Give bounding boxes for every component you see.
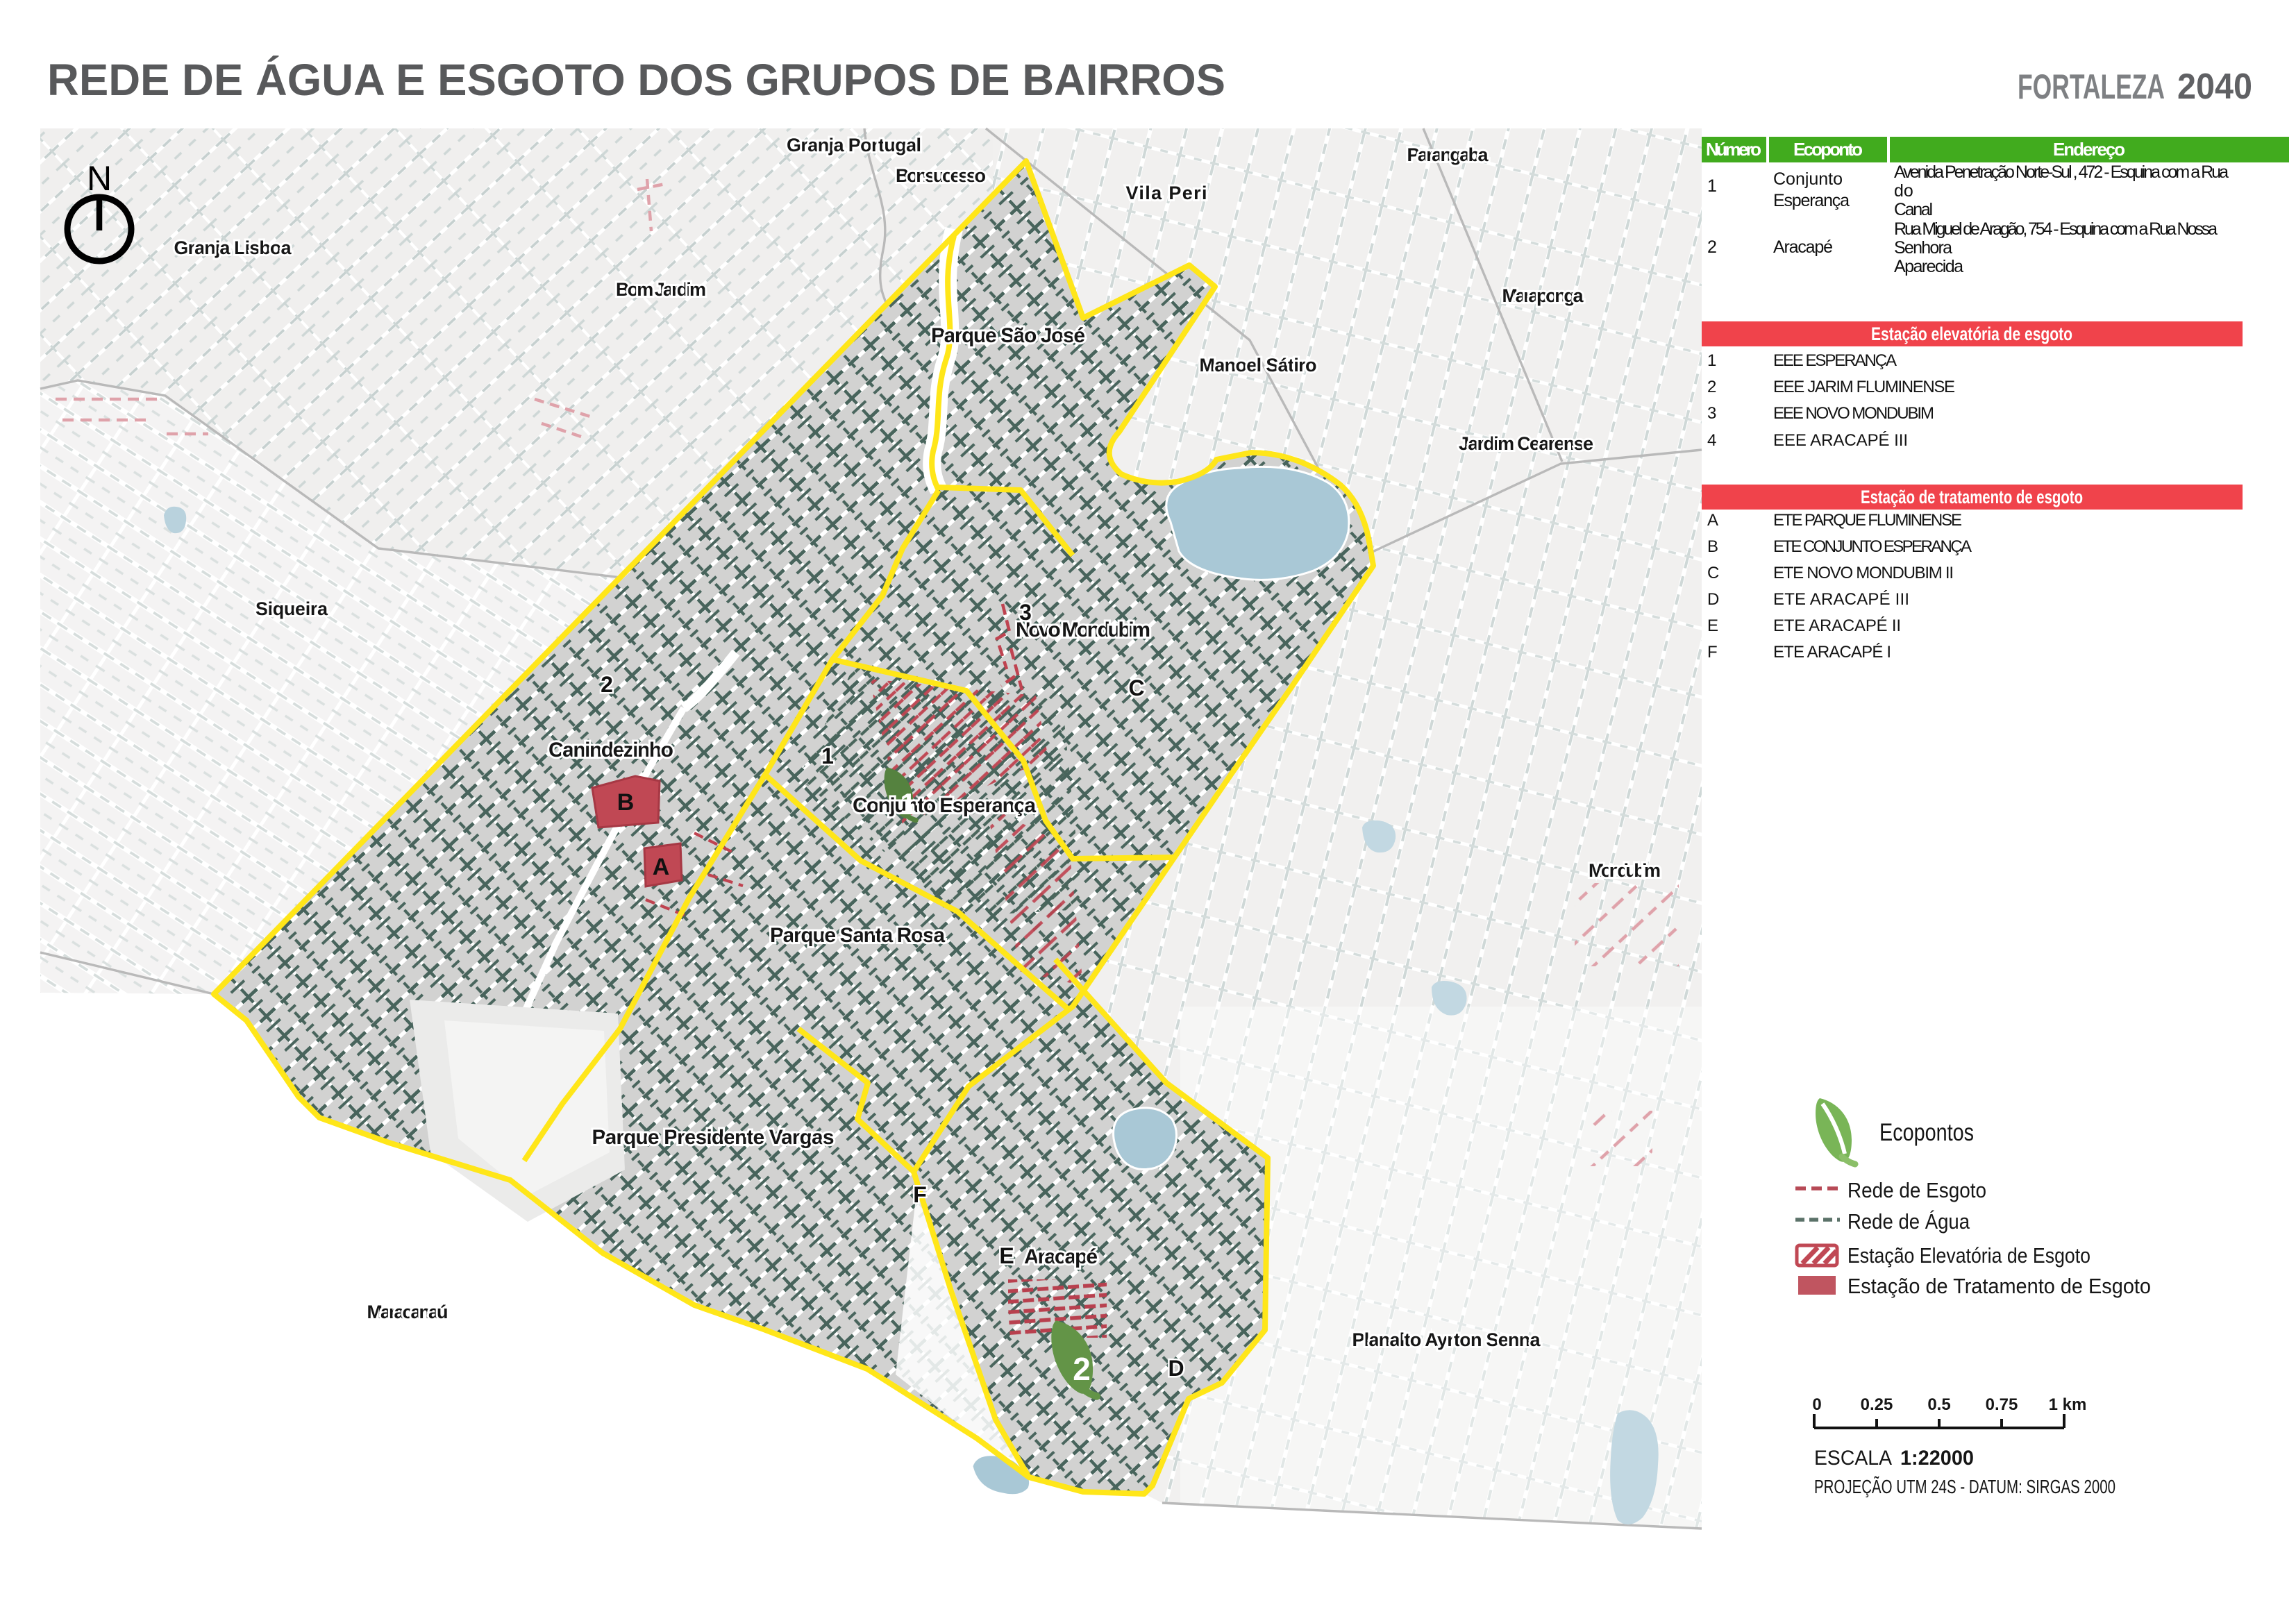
svg-text:PROJEÇÃO UTM 24S - DATUM: SIRG: PROJEÇÃO UTM 24S - DATUM: SIRGAS 2000 — [1814, 1476, 2115, 1497]
svg-text:1: 1 — [900, 787, 916, 820]
svg-text:Estação de tratamento de esgot: Estação de tratamento de esgoto — [1861, 487, 2083, 507]
svg-text:Estação elevatória de esgoto: Estação elevatória de esgoto — [1871, 323, 2072, 344]
svg-text:Esperança: Esperança — [1773, 191, 1850, 210]
svg-text:FORTALEZA: FORTALEZA — [2018, 67, 2165, 106]
svg-text:2: 2 — [1707, 237, 1717, 257]
svg-text:Canindezinho: Canindezinho — [548, 739, 673, 762]
svg-text:EEE ESPERANÇA: EEE ESPERANÇA — [1773, 351, 1897, 370]
svg-text:2: 2 — [601, 672, 613, 697]
svg-text:Jardim Cearense: Jardim Cearense — [1459, 433, 1593, 454]
svg-text:Senhora: Senhora — [1894, 238, 1952, 258]
svg-text:0.25: 0.25 — [1861, 1395, 1893, 1414]
svg-text:Parque São José: Parque São José — [931, 324, 1085, 347]
svg-text:Granja Portugal: Granja Portugal — [787, 135, 921, 155]
svg-text:C: C — [1128, 675, 1144, 700]
svg-text:ETE ARACAPÉ II: ETE ARACAPÉ II — [1773, 616, 1901, 635]
svg-text:D: D — [1168, 1356, 1184, 1381]
svg-text:3: 3 — [1707, 404, 1716, 423]
svg-text:Endereço: Endereço — [2053, 139, 2125, 160]
svg-text:ETE NOVO MONDUBIM II: ETE NOVO MONDUBIM II — [1773, 564, 1954, 582]
svg-text:Maraponga: Maraponga — [1502, 285, 1584, 306]
svg-text:0: 0 — [1812, 1395, 1821, 1414]
svg-text:Rede de Esgoto: Rede de Esgoto — [1847, 1178, 1986, 1202]
svg-text:1:22000: 1:22000 — [1900, 1447, 1974, 1470]
svg-text:EEE ARACAPÉ III: EEE ARACAPÉ III — [1773, 431, 1908, 450]
svg-text:Manoel Sátiro: Manoel Sátiro — [1200, 355, 1317, 376]
svg-text:Avenida Penetração Norte-Sul ,: Avenida Penetração Norte-Sul , 472 - Esq… — [1894, 162, 2229, 182]
svg-text:Aracapé: Aracapé — [1773, 237, 1833, 257]
svg-text:3: 3 — [1019, 600, 1032, 625]
svg-text:Aracapé: Aracapé — [1024, 1245, 1098, 1268]
svg-text:ESCALA: ESCALA — [1814, 1447, 1892, 1470]
svg-text:Mondubim: Mondubim — [1589, 860, 1661, 881]
svg-text:1: 1 — [1707, 351, 1716, 370]
svg-text:Estação Elevatória de Esgoto: Estação Elevatória de Esgoto — [1847, 1243, 2090, 1268]
svg-text:Parque Presidente Vargas: Parque Presidente Vargas — [592, 1126, 835, 1149]
svg-text:Novo Mondubim: Novo Mondubim — [1016, 619, 1150, 641]
svg-text:Parque Santa Rosa: Parque Santa Rosa — [770, 924, 945, 947]
svg-text:0.75: 0.75 — [1986, 1395, 2018, 1414]
svg-text:B: B — [1707, 537, 1718, 556]
svg-text:Número: Número — [1706, 139, 1761, 160]
svg-text:4: 4 — [1707, 431, 1716, 450]
svg-text:Estação de Tratamento de Esgot: Estação de Tratamento de Esgoto — [1847, 1274, 2151, 1298]
svg-text:2040: 2040 — [2177, 67, 2252, 107]
svg-text:Parangaba: Parangaba — [1407, 144, 1489, 165]
svg-text:Ecopontos: Ecopontos — [1879, 1119, 1974, 1146]
svg-text:0.5: 0.5 — [1927, 1395, 1950, 1414]
svg-text:E: E — [999, 1243, 1014, 1268]
svg-text:F: F — [1707, 643, 1718, 662]
svg-text:B: B — [617, 789, 635, 816]
svg-text:do: do — [1894, 181, 1913, 201]
svg-text:D: D — [1707, 590, 1719, 609]
svg-text:EEE NOVO MONDUBIM: EEE NOVO MONDUBIM — [1773, 404, 1934, 423]
svg-text:ETE ARACAPÉ III: ETE ARACAPÉ III — [1773, 590, 1909, 609]
svg-text:Granja Lisboa: Granja Lisboa — [174, 237, 292, 258]
svg-text:1 km: 1 km — [2049, 1395, 2087, 1414]
svg-text:Bom Jardim: Bom Jardim — [616, 279, 706, 300]
svg-text:Siqueira: Siqueira — [255, 598, 328, 619]
svg-text:F: F — [913, 1182, 927, 1207]
svg-text:EEE JARIM FLUMINENSE: EEE JARIM FLUMINENSE — [1773, 378, 1955, 396]
svg-text:N: N — [87, 159, 112, 198]
svg-text:A: A — [653, 854, 670, 880]
svg-text:E: E — [1707, 616, 1718, 635]
svg-text:Conjunto: Conjunto — [1773, 169, 1843, 189]
svg-text:C: C — [1707, 564, 1719, 582]
svg-text:Ecoponto: Ecoponto — [1793, 139, 1863, 160]
svg-text:Rede de Água: Rede de Água — [1847, 1209, 1970, 1234]
svg-text:Canal: Canal — [1894, 200, 1933, 219]
svg-text:1: 1 — [1707, 176, 1717, 196]
svg-text:ETE ARACAPÉ I: ETE ARACAPÉ I — [1773, 643, 1891, 662]
svg-text:2: 2 — [1707, 378, 1716, 396]
svg-text:REDE DE ÁGUA E ESGOTO DOS GRUP: REDE DE ÁGUA E ESGOTO DOS GRUPOS DE BAIR… — [47, 55, 1225, 105]
svg-text:Planalto Ayrton Senna: Planalto Ayrton Senna — [1352, 1329, 1541, 1350]
svg-text:Conjunto Esperança: Conjunto Esperança — [853, 794, 1036, 817]
svg-text:Bonsucesso: Bonsucesso — [896, 165, 986, 186]
svg-text:Rua Miguel de Aragão, 754 - Es: Rua Miguel de Aragão, 754 - Esquina com … — [1894, 219, 2218, 239]
svg-text:A: A — [1707, 511, 1718, 530]
svg-text:2: 2 — [1073, 1351, 1091, 1387]
svg-text:1: 1 — [821, 743, 834, 768]
svg-text:Aparecida: Aparecida — [1894, 257, 1963, 276]
svg-text:ETE PARQUE FLUMINENSE: ETE PARQUE FLUMINENSE — [1773, 511, 1962, 530]
svg-text:Maracanaú: Maracanaú — [367, 1302, 449, 1322]
svg-text:ETE CONJUNTO ESPERANÇA: ETE CONJUNTO ESPERANÇA — [1773, 537, 1972, 556]
